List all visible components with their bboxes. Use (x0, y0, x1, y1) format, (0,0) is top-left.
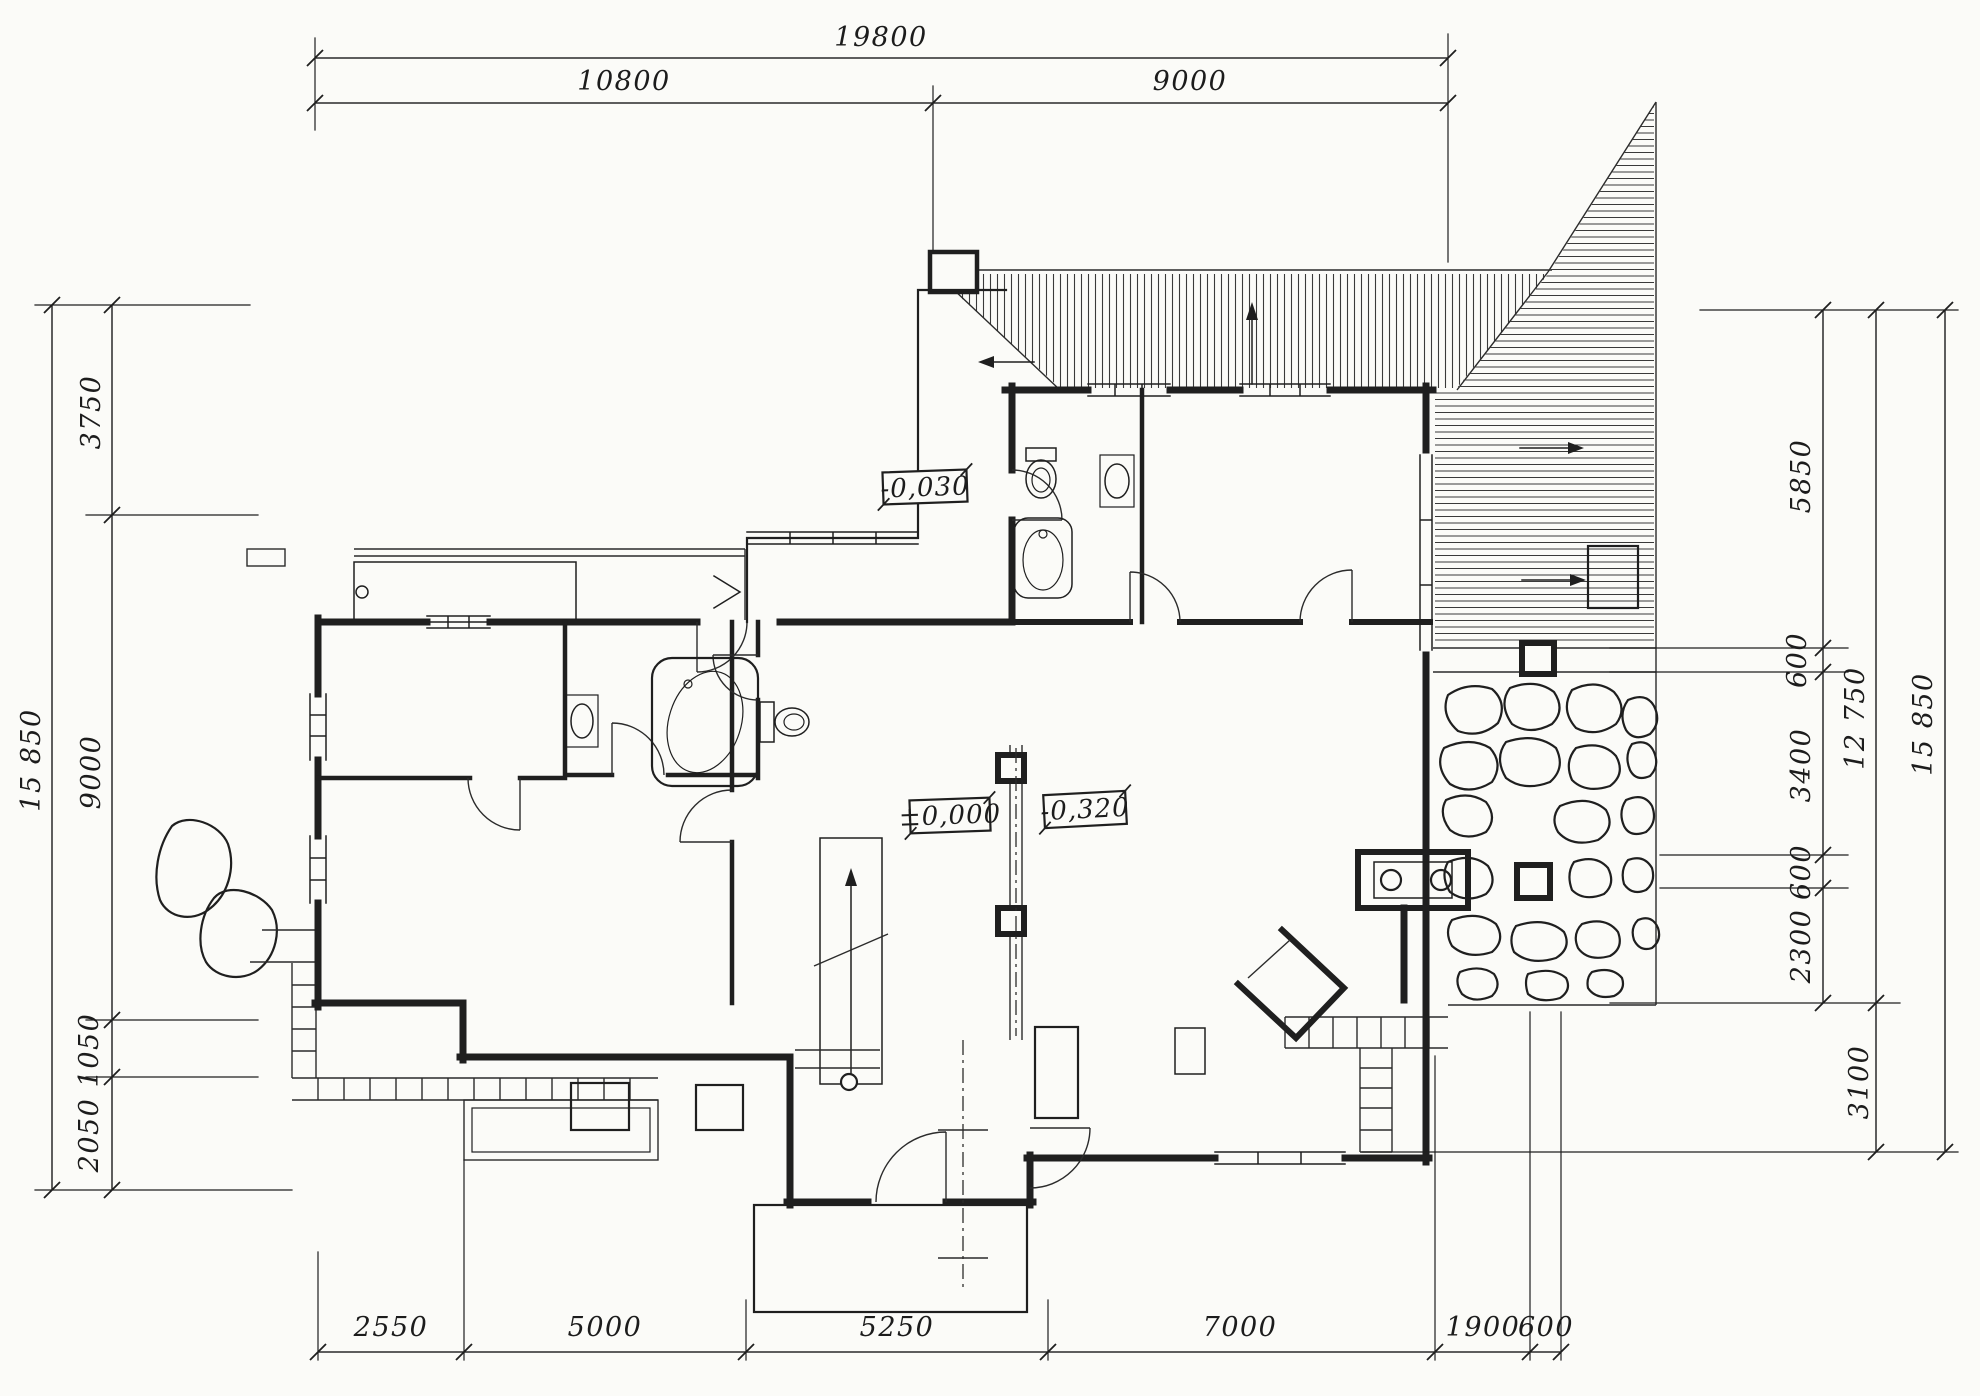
dim-bottom-seg-5: 1900 (1446, 1312, 1521, 1343)
dim-left-seg-1: 3750 (76, 375, 107, 450)
column (998, 755, 1024, 781)
level-terrace: -0,320 (1040, 793, 1131, 828)
dim-bottom-seg-2: 5000 (568, 1312, 643, 1343)
walls (315, 252, 1433, 1205)
dim-bottom-seg-6: 600 (1518, 1312, 1574, 1343)
dim-right-seg-3: 3400 (1786, 728, 1817, 803)
level-hall: -0,030 (880, 471, 970, 504)
stair-direction-chevron (714, 576, 740, 608)
toilet-tank (1026, 448, 1056, 461)
fireplace (1238, 852, 1468, 1038)
dim-bottom-seg-1: 2550 (353, 1312, 429, 1343)
dim-left-seg-3: 1050 (74, 1013, 105, 1088)
stone-patio (1440, 684, 1659, 1005)
dim-right-seg-2: 600 (1782, 632, 1813, 688)
flue (1381, 870, 1401, 890)
dim-top-overall: 19800 (834, 22, 927, 53)
dim-left-seg-2: 9000 (76, 735, 107, 810)
dim-top-seg-1: 10800 (577, 66, 670, 97)
level-entry: ±0,000 (898, 799, 1001, 833)
dim-bottom-seg-4: 7000 (1203, 1312, 1278, 1343)
garden-bush (156, 820, 318, 977)
interior-stair (795, 838, 888, 1090)
newel-post (841, 1074, 857, 1090)
dimension-ticks (44, 50, 1953, 1360)
dim-right-overall: 15 850 (1908, 672, 1939, 775)
dim-right-seg-6: 3100 (1844, 1045, 1875, 1120)
deck-column (1522, 643, 1554, 674)
sink (1105, 464, 1129, 498)
windows (310, 384, 1432, 1164)
patio-column (1517, 865, 1550, 898)
dim-right-seg-5: 2300 (1786, 909, 1817, 985)
dim-right-seg-4: 600 (1786, 844, 1817, 900)
column (998, 908, 1024, 934)
dim-left-seg-4: 2050 (74, 1098, 105, 1174)
terrace-step (1175, 1028, 1205, 1074)
floor-plan-svg: 19800 10800 9000 15 850 3750 9000 1050 2… (0, 0, 1980, 1396)
flue (1431, 870, 1451, 890)
chimney (930, 252, 977, 292)
dim-left-overall: 15 850 (16, 708, 47, 811)
roof-overhang-hatch (928, 270, 1552, 390)
bath-fixtures (566, 448, 1134, 786)
toilet-tank (760, 702, 774, 742)
exterior-stair (247, 549, 745, 622)
dim-right-subtotal: 12 750 (1840, 666, 1871, 769)
doors (468, 470, 1352, 1202)
drawing-sheet: 19800 10800 9000 15 850 3750 9000 1050 2… (0, 0, 1980, 1396)
dimension-lines (35, 34, 1958, 1360)
dim-bottom-seg-3: 5250 (860, 1312, 935, 1343)
dim-right-seg-1: 5850 (1786, 439, 1817, 514)
dim-top-seg-2: 9000 (1153, 66, 1228, 97)
extension-lines (35, 34, 1958, 1360)
sink (571, 704, 593, 738)
